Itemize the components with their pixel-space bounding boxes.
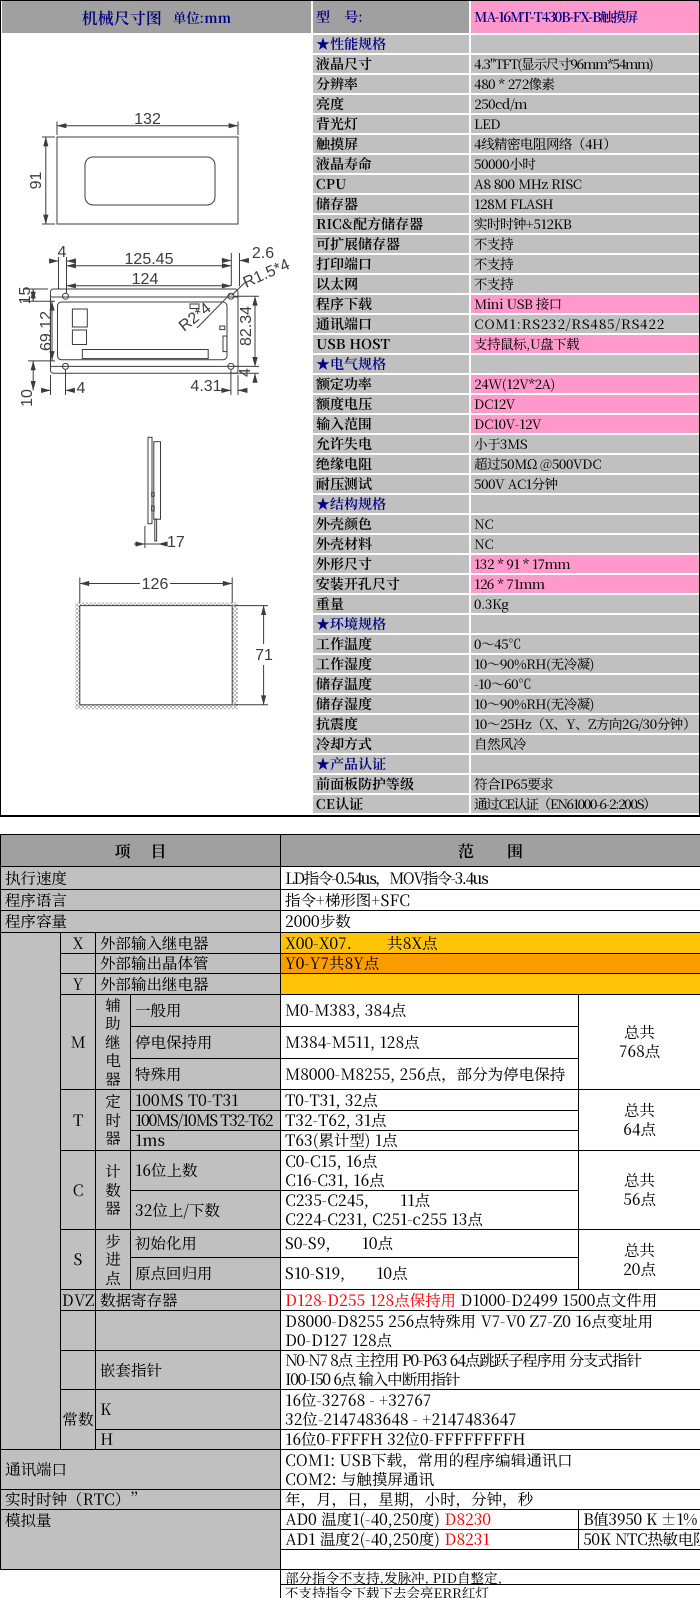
- svg-text:4.31: 4.31: [190, 378, 221, 395]
- svg-text:91: 91: [28, 172, 45, 190]
- svg-text:4: 4: [237, 368, 254, 377]
- svg-text:10: 10: [19, 389, 36, 407]
- svg-text:4: 4: [58, 244, 67, 261]
- svg-text:82.34: 82.34: [238, 306, 255, 346]
- svg-text:R2*4: R2*4: [176, 300, 215, 335]
- svg-text:15: 15: [17, 287, 34, 305]
- svg-text:125.45: 125.45: [125, 251, 174, 268]
- svg-text:4: 4: [77, 380, 86, 397]
- svg-text:126: 126: [142, 576, 169, 593]
- svg-text:69.12: 69.12: [38, 311, 55, 351]
- svg-text:2.6: 2.6: [252, 245, 274, 262]
- svg-text:132: 132: [134, 111, 161, 128]
- svg-text:71: 71: [255, 647, 273, 664]
- svg-text:124: 124: [132, 271, 159, 288]
- svg-text:17: 17: [167, 534, 185, 551]
